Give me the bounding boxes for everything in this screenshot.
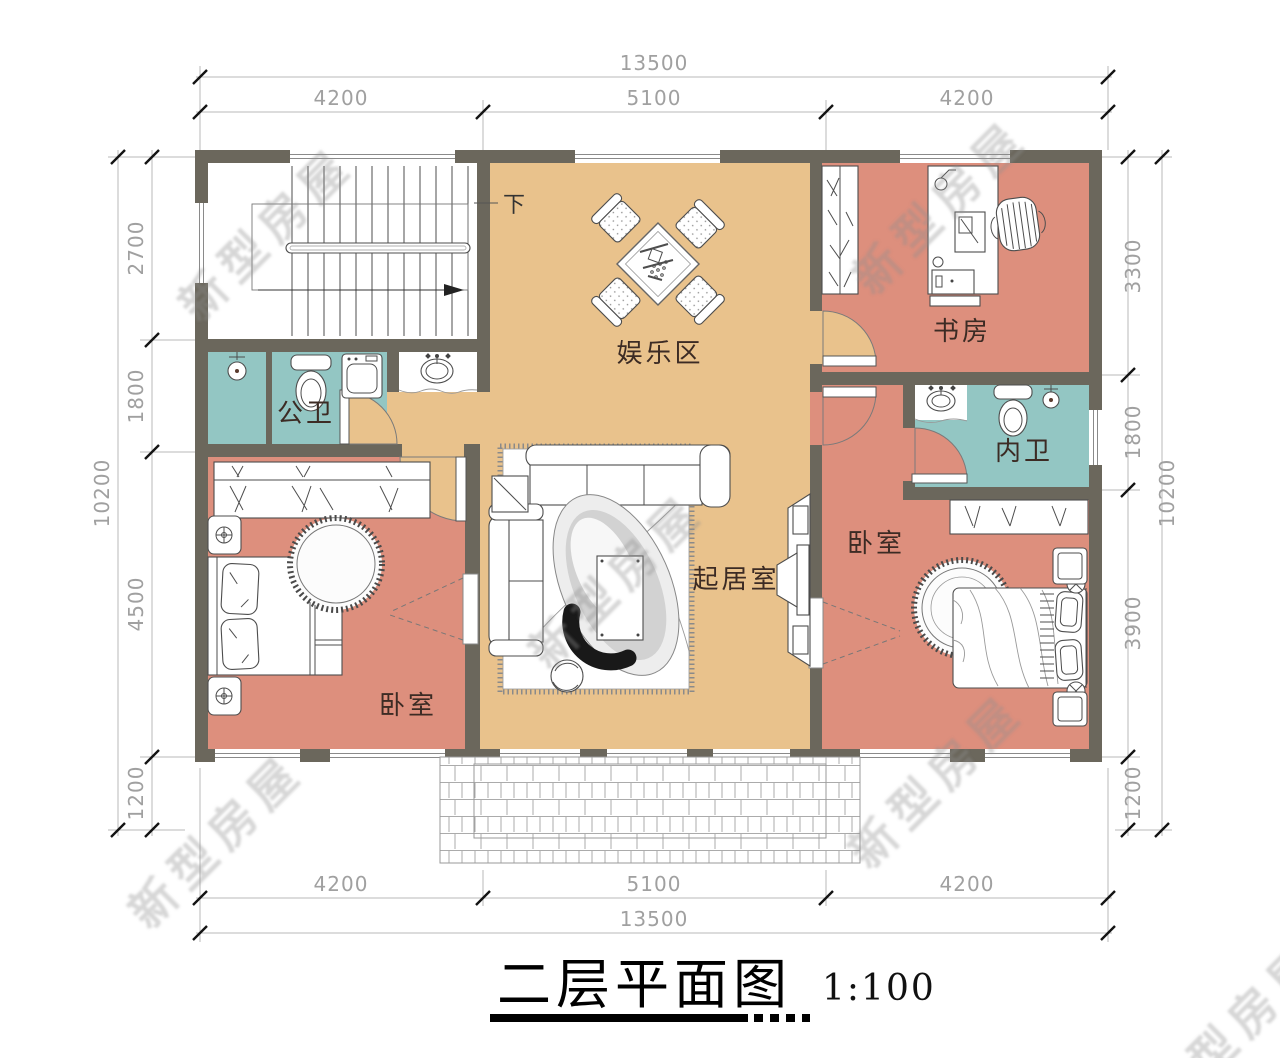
watermark-text: 新型房屋 [1138, 930, 1280, 1058]
nightstand-right-top [1053, 548, 1087, 584]
tv [797, 545, 809, 615]
dim-right-seg-2: 1800 [1121, 405, 1145, 460]
dim-left-total: 10200 [90, 459, 114, 528]
public-bathroom-label: 公卫 [277, 399, 335, 429]
dim-bottom-seg-2: 5100 [627, 872, 682, 896]
plan-title: 二层平面图 [497, 953, 792, 1016]
living-room-label: 起居室 [692, 565, 779, 595]
dim-right-total: 10200 [1155, 459, 1179, 528]
dim-bottom-seg-1: 4200 [314, 872, 369, 896]
floor-plan-svg: 下 [0, 0, 1280, 1058]
nightstand-right-bottom [1053, 692, 1087, 726]
bed-right [953, 575, 1087, 700]
stair-down-label: 下 [503, 193, 525, 218]
dim-top-total: 13500 [620, 51, 689, 75]
dim-left: 2700 1800 4500 1200 10200 [90, 150, 195, 837]
window-right-ensuite [1089, 410, 1102, 465]
study-label: 书房 [933, 317, 991, 347]
dim-bottom-seg-3: 4200 [940, 872, 995, 896]
title-underline [490, 1014, 748, 1022]
hall-left-arm [399, 392, 480, 444]
wardrobe-left [214, 462, 430, 518]
dim-top-seg-3: 4200 [940, 86, 995, 110]
nightstand-left-bottom [208, 677, 241, 715]
shower-partition [266, 352, 272, 444]
side-table [492, 476, 528, 512]
window-top-entertainment [575, 150, 720, 163]
porch-roof [440, 757, 860, 863]
dim-right-seg-1: 3300 [1121, 239, 1145, 294]
entertainment-label: 娱乐区 [616, 339, 703, 369]
stair-handrail [286, 243, 470, 253]
dim-left-seg-1: 2700 [124, 221, 148, 276]
dim-left-seg-3: 4500 [124, 577, 148, 632]
nightstand-left-top [208, 516, 241, 554]
bedroom-left-label: 卧室 [379, 691, 437, 721]
dim-left-seg-2: 1800 [124, 369, 148, 424]
ensuite-bathroom-label: 内卫 [995, 437, 1053, 467]
wardrobe-right [950, 500, 1088, 534]
floor-plan-page: 下 [0, 0, 1280, 1058]
sofa-top [526, 445, 730, 507]
dim-right-seg-4: 1200 [1121, 766, 1145, 821]
washing-machine [342, 354, 382, 398]
window-bottom-bedroom-left-2 [330, 749, 445, 762]
dim-left-seg-4: 1200 [124, 766, 148, 821]
round-rug-left [290, 518, 382, 610]
dim-right-seg-3: 3900 [1121, 596, 1145, 651]
bedroom-right-label: 卧室 [847, 529, 905, 559]
dim-bottom-total: 13500 [620, 907, 689, 931]
building: 下 [195, 150, 1102, 762]
title-block: 二层平面图 1:100 [490, 953, 936, 1022]
dim-top-seg-1: 4200 [314, 86, 369, 110]
plan-scale: 1:100 [822, 968, 936, 1009]
dim-top-seg-2: 5100 [627, 86, 682, 110]
dim-right: 3300 1800 3900 1200 10200 [1102, 150, 1179, 837]
